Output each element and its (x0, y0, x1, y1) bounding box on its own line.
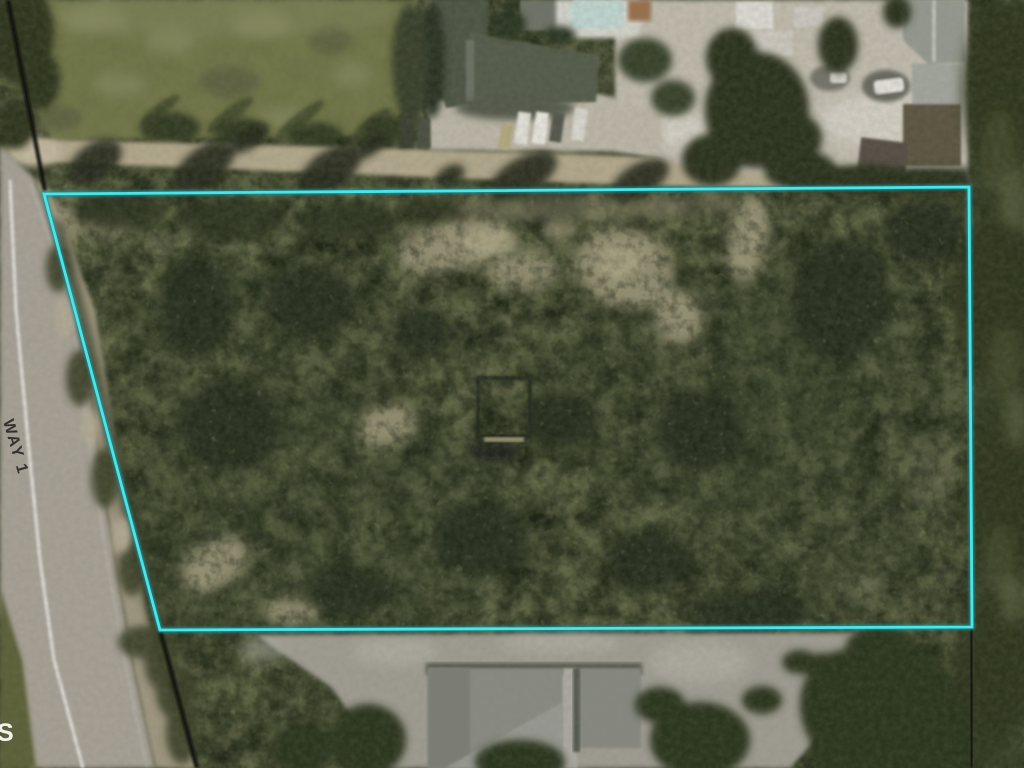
svg-text:S: S (0, 719, 14, 747)
